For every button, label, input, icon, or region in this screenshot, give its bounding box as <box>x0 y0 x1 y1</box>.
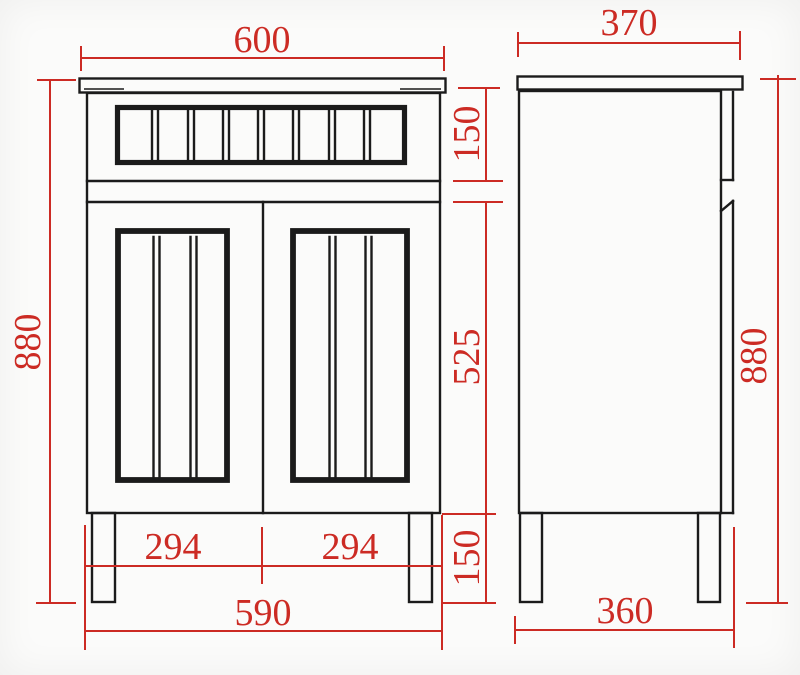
dim-label-right-door-width: 294 <box>322 526 379 568</box>
side-right-leg <box>698 513 720 602</box>
front-right-door-grooves <box>330 237 372 477</box>
dim-side-bottom-depth: 360 <box>515 527 734 648</box>
dim-label-bottom-depth: 360 <box>597 590 654 632</box>
front-right-leg <box>409 513 432 602</box>
side-countertop <box>518 77 743 90</box>
front-right-door-panel <box>293 231 407 480</box>
dim-label-bottom-width: 590 <box>235 592 292 634</box>
dim-label-drawer-height: 150 <box>446 106 488 163</box>
front-drawer-slat-dividers <box>152 110 370 160</box>
dim-front-bottom-width: 590 <box>85 592 442 634</box>
dim-front-top-width: 600 <box>81 19 444 71</box>
dim-side-overall-height: 880 <box>733 75 796 603</box>
dim-front-overall-height: 880 <box>7 80 76 603</box>
dim-label-top-width: 600 <box>234 19 291 61</box>
front-left-leg <box>92 513 115 602</box>
front-view <box>80 79 446 603</box>
dim-label-overall-height-right: 880 <box>733 328 775 385</box>
side-left-leg <box>520 513 542 602</box>
front-drawer-frame <box>118 108 405 163</box>
dim-label-overall-height-left: 880 <box>7 314 49 371</box>
front-left-door-panel <box>118 231 227 480</box>
front-left-door-grooves <box>154 237 197 477</box>
vanity-cabinet-drawing: 600 880 150 525 150 <box>0 0 800 675</box>
dim-label-door-height: 525 <box>446 329 488 386</box>
side-carcass <box>519 91 721 513</box>
dim-label-top-depth: 370 <box>601 2 658 44</box>
dim-label-left-door-width: 294 <box>145 526 202 568</box>
side-door-front-top-notch <box>721 201 733 211</box>
dimensions: 600 880 150 525 150 <box>7 2 796 650</box>
technical-drawing-canvas: 600 880 150 525 150 <box>0 0 800 675</box>
side-view <box>518 77 743 603</box>
front-countertop <box>80 79 446 93</box>
dim-front-height-chain: 150 525 150 <box>442 88 503 603</box>
dim-side-top-depth: 370 <box>518 2 740 60</box>
dim-label-leg-height: 150 <box>446 530 488 587</box>
